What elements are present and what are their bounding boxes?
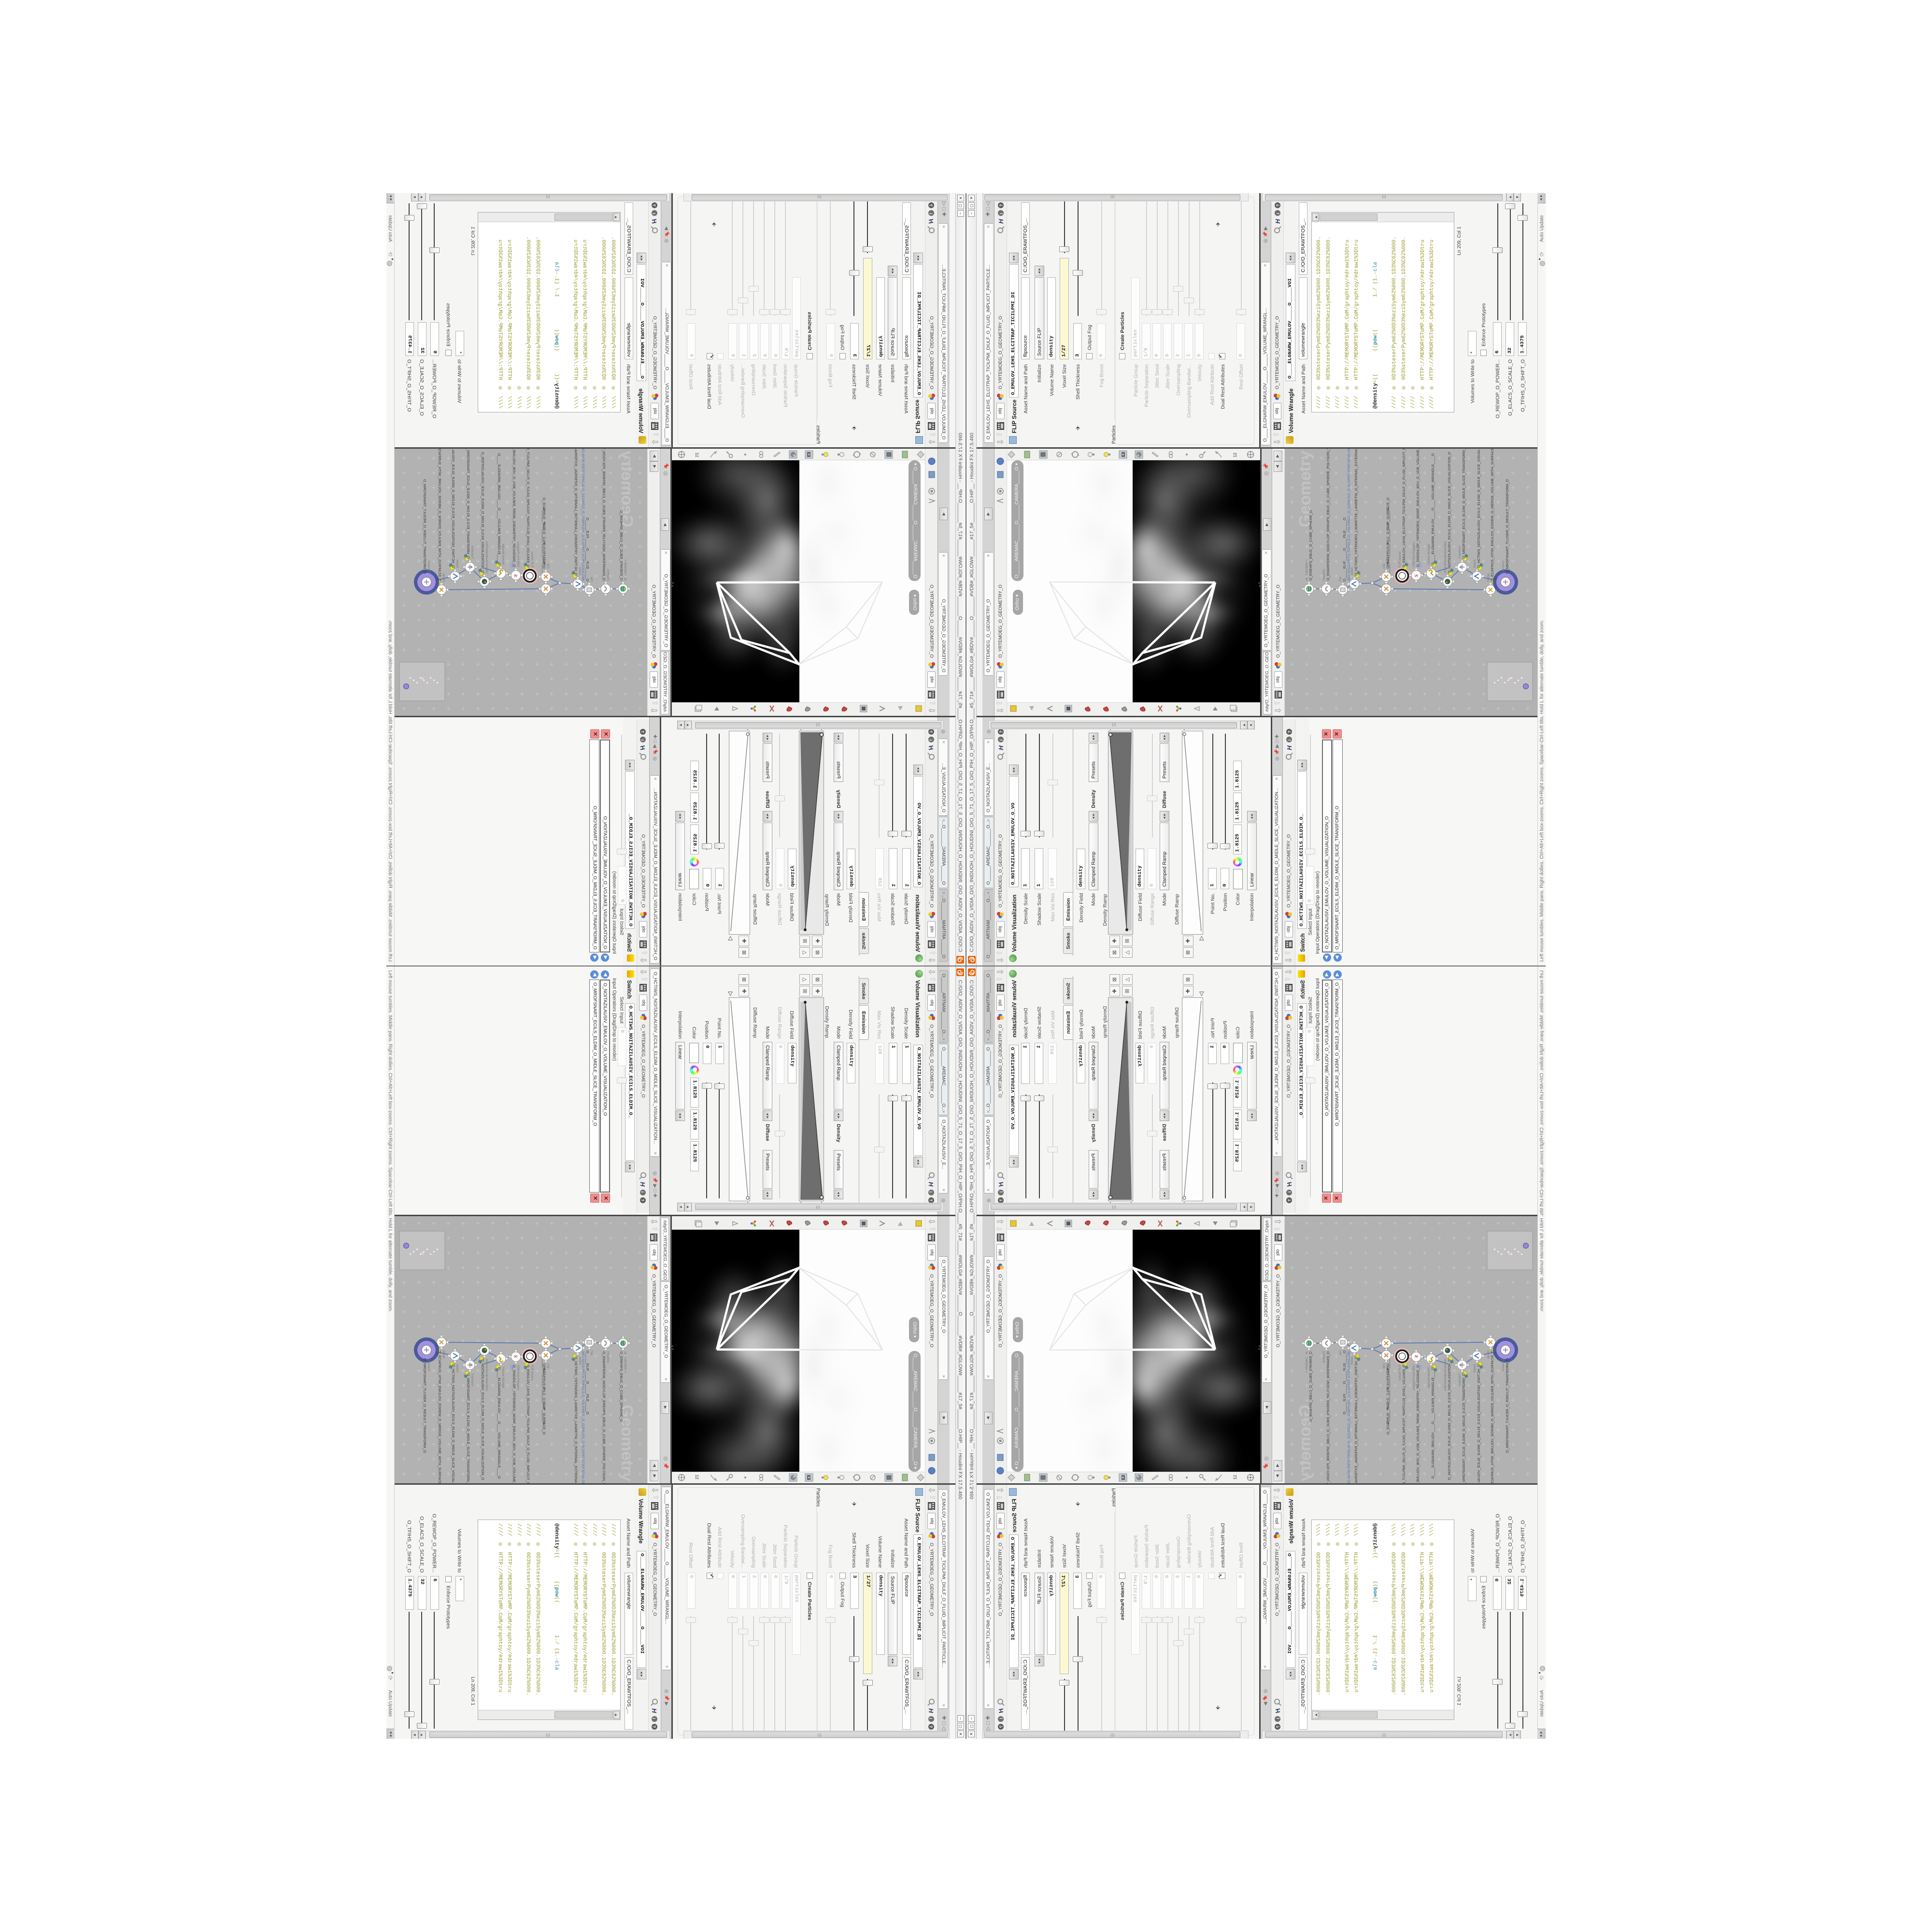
svg-text:?: ?: [1276, 1725, 1280, 1728]
svg-text:i: i: [652, 213, 656, 214]
svg-text:?: ?: [640, 731, 645, 734]
svg-text:ae_CubeSphere: ae_CubeSphere: [624, 559, 626, 581]
svg-text:O_NOITAZILAUSIV_ECILS_ELDIM_O_: O_NOITAZILAUSIV_ECILS_ELDIM_O_MIDLE_SLIC…: [481, 452, 485, 573]
svg-text:O_MROFSNART_ECILS_ELDIM_O_MIDL: O_MROFSNART_ECILS_ELDIM_O_MIDLE_SLICE_TR…: [466, 1373, 470, 1483]
svg-text:File: File: [590, 577, 593, 582]
svg-text:O_ECAFRUS_HTIW_EMULOV_EGREM_O_: O_ECAFRUS_HTIW_EMULOV_EGREM_O_MERGE_VOLU…: [438, 1350, 442, 1483]
svg-text:ae_CubeSphere: ae_CubeSphere: [624, 1351, 626, 1373]
svg-text:i: i: [928, 739, 933, 741]
svg-text:?: ?: [928, 1725, 933, 1728]
svg-text:?: ?: [1287, 1199, 1292, 1202]
svg-text:O_EREHPS_EBUC_O_CUBE_SPHERE_O: O_EREHPS_EBUC_O_CUBE_SPHERE_O: [619, 1351, 624, 1422]
svg-text:O_MROFSNART_TLUSER_O_RESULT_TR: O_MROFSNART_TLUSER_O_RESULT_TRANSFORM_O: [1505, 1358, 1509, 1453]
svg-text:O_ECAFRUS_PILC_O_CLIP_SURFACE_: O_ECAFRUS_PILC_O_CLIP_SURFACE_O: [542, 1364, 546, 1435]
svg-text:i: i: [999, 1718, 1004, 1719]
svg-text:Volume Wrangle: Volume Wrangle: [501, 1367, 504, 1389]
svg-text:JBO.AVD3.PETS.TRPDLS.O_XSLPREG: JBO.AVD3.PETS.TRPDLS.O_XSLPREG_O_GZMUSS_…: [581, 449, 585, 582]
svg-text:O_SNOGILOP_YRTEMOEG_MORF_EMULO: O_SNOGILOP_YRTEMOEG_MORF_EMULOV_BDV_O_VD…: [512, 449, 516, 567]
svg-text:O____ELGNARW_EMULOV____O____VO: O____ELGNARW_EMULOV____O____VOLUME_WRANG…: [497, 1367, 501, 1479]
svg-text:?: ?: [652, 204, 656, 207]
svg-text:H: H: [1274, 219, 1281, 224]
svg-text:O_____ELIF_____O_____FILE_____: O_____ELIF_____O_____FILE_____O: [1342, 1350, 1347, 1415]
svg-text:O_EMARFERIW_NOGYLOP_EREHPS_EBU: O_EMARFERIW_NOGYLOP_EREHPS_EBUC_O_CUBE_S…: [602, 449, 606, 581]
svg-text:12: 12: [695, 1475, 699, 1479]
svg-text:Transform: Transform: [427, 1358, 430, 1371]
svg-text:O_ECAFRUS_HTIW_EMULOV_EGREM_O_: O_ECAFRUS_HTIW_EMULOV_EGREM_O_MERGE_VOLU…: [438, 449, 442, 582]
svg-text:Merge: Merge: [442, 1350, 445, 1359]
svg-text:O_MROFSNART_TLUSER_O_RESULT_TR: O_MROFSNART_TLUSER_O_RESULT_TRANSFORM_O: [1505, 479, 1509, 574]
svg-text:Transform: Transform: [470, 546, 473, 559]
svg-text:i: i: [1276, 1718, 1280, 1719]
svg-text:Transform: Transform: [427, 561, 430, 574]
svg-text:i: i: [1287, 739, 1292, 741]
svg-text:Volume Wrangle: Volume Wrangle: [501, 543, 504, 565]
svg-text:O_HCTIWS_YRTEMOEG_LANRETXE_LAN: O_HCTIWS_YRTEMOEG_LANRETXE_LANRETNI_O_IN…: [574, 1356, 578, 1483]
svg-text:H: H: [997, 1708, 1005, 1713]
svg-text:i: i: [928, 1192, 933, 1193]
svg-text:O_EREHPS_EBUC_O_CUBE_SPHERE_O: O_EREHPS_EBUC_O_CUBE_SPHERE_O: [1308, 1351, 1313, 1422]
svg-text:H: H: [639, 1182, 646, 1187]
svg-text:H: H: [997, 1182, 1005, 1187]
svg-text:i: i: [1276, 213, 1280, 214]
svg-text:i: i: [928, 213, 933, 214]
svg-text:O_MROFSNART_ECILS_ELDIM_O_MIDL: O_MROFSNART_ECILS_ELDIM_O_MIDLE_SLICE_TR…: [466, 449, 470, 559]
svg-text:i: i: [640, 1192, 645, 1193]
svg-text:?: ?: [999, 1199, 1004, 1202]
svg-text:O_EMULOV_LEHS_ELCITRAP_TICILPM: O_EMULOV_LEHS_ELCITRAP_TICILPMI_DIULF_O_…: [526, 449, 530, 568]
svg-text:Switch: Switch: [455, 559, 458, 568]
svg-text:Clip: Clip: [546, 563, 549, 568]
svg-text:O_SNOGILOP_YRTEMOEG_MORF_EMULO: O_SNOGILOP_YRTEMOEG_MORF_EMULOV_BDV_O_VD…: [1416, 449, 1420, 567]
svg-text:O_EMULOV_LEHS_ELCITRAP_TICILPM: O_EMULOV_LEHS_ELCITRAP_TICILPMI_DIULF_O_…: [526, 1364, 530, 1483]
svg-text:O_MROFSNART_TLUSER_O_RESULT_TR: O_MROFSNART_TLUSER_O_RESULT_TRANSFORM_O: [423, 1358, 427, 1453]
svg-text:O_EMULOV_LEHS_ELCITRAP_TICILPM: O_EMULOV_LEHS_ELCITRAP_TICILPMI_DIULF_O_…: [1402, 1364, 1406, 1483]
svg-text:S: S: [512, 574, 518, 577]
svg-text:Merge: Merge: [442, 573, 445, 582]
svg-text:Clip: Clip: [546, 1364, 549, 1369]
svg-text:O_ECAFRUS_HTIW_EMULOV_EGREM_O_: O_ECAFRUS_HTIW_EMULOV_EGREM_O_MERGE_VOLU…: [1490, 449, 1494, 582]
svg-text:O_SNOGILOP_YRTEMOEG_MORF_EMULO: O_SNOGILOP_YRTEMOEG_MORF_EMULOV_BDV_O_VD…: [512, 1365, 516, 1483]
svg-text:H: H: [651, 219, 658, 224]
svg-text:O_ECAFRUS_PILC_O_CLIP_SURFACE_: O_ECAFRUS_PILC_O_CLIP_SURFACE_O: [1386, 497, 1390, 568]
svg-text:O____ELGNARW_EMULOV____O____VO: O____ELGNARW_EMULOV____O____VOLUME_WRANG…: [1431, 1367, 1435, 1479]
svg-text:O_HCTIWS_NOITAZILAUSIV_ECILS_E: O_HCTIWS_NOITAZILAUSIV_ECILS_ELDIM_O_MID…: [451, 1364, 455, 1483]
svg-text:O_HCTIWS_YRTEMOEG_LANRETXE_LAN: O_HCTIWS_YRTEMOEG_LANRETXE_LANRETNI_O_IN…: [1354, 449, 1358, 576]
svg-text:H: H: [997, 219, 1005, 224]
svg-text:?: ?: [999, 731, 1004, 734]
svg-text:O_HCTIWS_YRTEMOEG_LANRETXE_LAN: O_HCTIWS_YRTEMOEG_LANRETXE_LANRETNI_O_IN…: [574, 449, 578, 576]
svg-text:S: S: [512, 1355, 518, 1358]
svg-text:O_HCTIWS_NOITAZILAUSIV_ECILS_E: O_HCTIWS_NOITAZILAUSIV_ECILS_ELDIM_O_MID…: [1477, 449, 1481, 568]
svg-text:?: ?: [652, 1725, 656, 1728]
svg-text:O____ELGNARW_EMULOV____O____VO: O____ELGNARW_EMULOV____O____VOLUME_WRANG…: [497, 453, 501, 565]
svg-text:i: i: [640, 739, 645, 741]
svg-text:S: S: [1414, 1355, 1420, 1358]
svg-text:i: i: [1287, 1192, 1292, 1193]
svg-text:O_ECAFRUS_PILC_O_CLIP_SURFACE_: O_ECAFRUS_PILC_O_CLIP_SURFACE_O: [1386, 1364, 1390, 1435]
svg-text:12: 12: [1233, 1475, 1237, 1479]
svg-text:PolyWire: PolyWire: [606, 568, 609, 581]
svg-text:O_____ELIF_____O_____FILE_____: O_____ELIF_____O_____FILE_____O: [585, 1350, 590, 1415]
svg-text:?: ?: [1287, 731, 1292, 734]
svg-text:H: H: [639, 745, 646, 750]
svg-text:?: ?: [999, 204, 1004, 207]
svg-text:H: H: [927, 1708, 935, 1713]
svg-text:O_MROFSNART_TLUSER_O_RESULT_TR: O_MROFSNART_TLUSER_O_RESULT_TRANSFORM_O: [423, 479, 427, 574]
svg-text:H: H: [651, 1708, 658, 1713]
svg-text:O_EMARFERIW_NOGYLOP_EREHPS_EBU: O_EMARFERIW_NOGYLOP_EREHPS_EBUC_O_CUBE_S…: [602, 1351, 606, 1483]
svg-text:?: ?: [928, 1199, 933, 1202]
svg-text:O_ECAFRUS_HTIW_EMULOV_EGREM_O_: O_ECAFRUS_HTIW_EMULOV_EGREM_O_MERGE_VOLU…: [1490, 1350, 1494, 1483]
svg-text:O_HCTIWS_NOITAZILAUSIV_ECILS_E: O_HCTIWS_NOITAZILAUSIV_ECILS_ELDIM_O_MID…: [451, 449, 455, 568]
svg-text:JBO.AVD3.PETS.TRPDLS.O_XSLPREG: JBO.AVD3.PETS.TRPDLS.O_XSLPREG_O_GZMUSS_…: [1347, 449, 1351, 582]
svg-text:O_EREHPS_EBUC_O_CUBE_SPHERE_O: O_EREHPS_EBUC_O_CUBE_SPHERE_O: [1308, 510, 1313, 581]
svg-text:O_NOITAZILAUSIV_ECILS_ELDIM_O_: O_NOITAZILAUSIV_ECILS_ELDIM_O_MIDLE_SLIC…: [1447, 452, 1451, 573]
svg-text:H: H: [927, 219, 935, 224]
svg-text:O_EREHPS_EBUC_O_CUBE_SPHERE_O: O_EREHPS_EBUC_O_CUBE_SPHERE_O: [619, 510, 624, 581]
svg-text:O_MROFSNART_ECILS_ELDIM_O_MIDL: O_MROFSNART_ECILS_ELDIM_O_MIDLE_SLICE_TR…: [1462, 449, 1466, 559]
svg-text:?: ?: [928, 731, 933, 734]
svg-text:H: H: [1286, 1182, 1293, 1187]
svg-text:O_____ELIF_____O_____FILE_____: O_____ELIF_____O_____FILE_____O: [1342, 517, 1347, 582]
svg-text:O_ECAFRUS_PILC_O_CLIP_SURFACE_: O_ECAFRUS_PILC_O_CLIP_SURFACE_O: [542, 497, 546, 568]
svg-text:O_HCTIWS_NOITAZILAUSIV_ECILS_E: O_HCTIWS_NOITAZILAUSIV_ECILS_ELDIM_O_MID…: [1477, 1364, 1481, 1483]
svg-text:O_MROFSNART_ECILS_ELDIM_O_MIDL: O_MROFSNART_ECILS_ELDIM_O_MIDLE_SLICE_TR…: [1462, 1373, 1466, 1483]
svg-text:Transform: Transform: [470, 1373, 473, 1386]
svg-text:12: 12: [695, 453, 699, 457]
svg-text:VolumeVisualizationSlice: VolumeVisualizationSlice: [485, 1359, 488, 1391]
svg-text:O_NOITAZILAUSIV_ECILS_ELDIM_O_: O_NOITAZILAUSIV_ECILS_ELDIM_O_MIDLE_SLIC…: [1447, 1359, 1451, 1480]
svg-text:?: ?: [928, 204, 933, 207]
svg-text:i: i: [999, 739, 1004, 741]
svg-text:JBO.AVD3.PETS.TRPDLS.O_XSLPREG: JBO.AVD3.PETS.TRPDLS.O_XSLPREG_O_GZMUSS_…: [1347, 1350, 1351, 1483]
svg-text:12: 12: [1233, 453, 1237, 457]
svg-text:Switch: Switch: [578, 567, 581, 576]
svg-text:VDB from Polygons: VDB from Polygons: [516, 542, 519, 567]
svg-text:?: ?: [999, 1725, 1004, 1728]
svg-text:H: H: [997, 745, 1005, 750]
svg-text:?: ?: [1276, 204, 1280, 207]
svg-text:O_EMARFERIW_NOGYLOP_EREHPS_EBU: O_EMARFERIW_NOGYLOP_EREHPS_EBUC_O_CUBE_S…: [1326, 1351, 1330, 1483]
svg-text:H: H: [1286, 745, 1293, 750]
svg-text:O_EMULOV_LEHS_ELCITRAP_TICILPM: O_EMULOV_LEHS_ELCITRAP_TICILPMI_DIULF_O_…: [1402, 449, 1406, 568]
svg-text:i: i: [999, 213, 1004, 214]
svg-text:i: i: [928, 1718, 933, 1719]
svg-text:O_HCTIWS_YRTEMOEG_LANRETXE_LAN: O_HCTIWS_YRTEMOEG_LANRETXE_LANRETNI_O_IN…: [1354, 1356, 1358, 1483]
svg-text:?: ?: [640, 1199, 645, 1202]
svg-text:O_____ELIF_____O_____FILE_____: O_____ELIF_____O_____FILE_____O: [585, 517, 590, 582]
svg-text:JBO.AVD3.PETS.TRPDLS.O_XSLPREG: JBO.AVD3.PETS.TRPDLS.O_XSLPREG_O_GZMUSS_…: [581, 1350, 585, 1483]
svg-text:O_EMARFERIW_NOGYLOP_EREHPS_EBU: O_EMARFERIW_NOGYLOP_EREHPS_EBUC_O_CUBE_S…: [1326, 449, 1330, 581]
svg-text:VDB from Polygons: VDB from Polygons: [516, 1365, 519, 1390]
svg-text:i: i: [652, 1718, 656, 1719]
svg-text:FLIP Source: FLIP Source: [530, 551, 533, 568]
svg-text:PolyWire: PolyWire: [606, 1351, 609, 1364]
svg-text:FLIP Source: FLIP Source: [530, 1364, 533, 1381]
svg-text:VolumeVisualizationSlice: VolumeVisualizationSlice: [485, 541, 488, 573]
svg-text:Switch: Switch: [578, 1356, 581, 1365]
svg-text:H: H: [927, 745, 935, 750]
svg-text:File: File: [590, 1350, 593, 1355]
svg-text:H: H: [927, 1182, 935, 1187]
svg-text:O_NOITAZILAUSIV_ECILS_ELDIM_O_: O_NOITAZILAUSIV_ECILS_ELDIM_O_MIDLE_SLIC…: [481, 1359, 485, 1480]
svg-text:O____ELGNARW_EMULOV____O____VO: O____ELGNARW_EMULOV____O____VOLUME_WRANG…: [1431, 453, 1435, 565]
svg-text:O_SNOGILOP_YRTEMOEG_MORF_EMULO: O_SNOGILOP_YRTEMOEG_MORF_EMULOV_BDV_O_VD…: [1416, 1365, 1420, 1483]
svg-text:S: S: [1414, 574, 1420, 577]
svg-text:i: i: [999, 1192, 1004, 1193]
svg-text:H: H: [1274, 1708, 1281, 1713]
svg-text:Switch: Switch: [455, 1364, 458, 1373]
